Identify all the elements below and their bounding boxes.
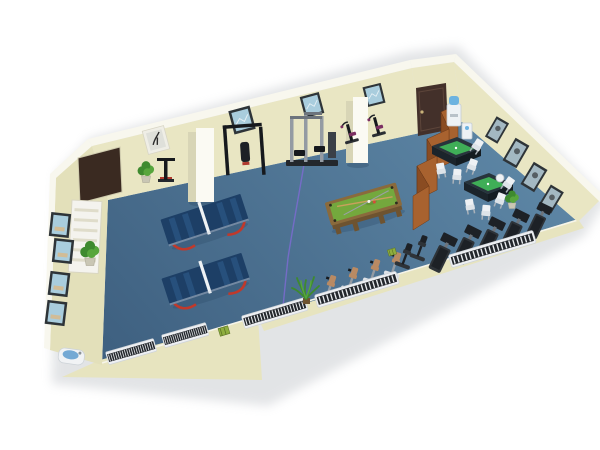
dispenser-body: [462, 123, 472, 139]
pillar-front: [196, 128, 214, 202]
rack-bag: [240, 142, 250, 163]
stool[interactable]: Stool: [496, 174, 504, 182]
machine-handlebar: [157, 158, 175, 161]
pillar-front: [353, 97, 368, 163]
pillar-1[interactable]: Pillar: [188, 128, 215, 207]
picture-left-2[interactable]: Framed picture: [52, 238, 74, 264]
gym-bar: [304, 112, 322, 115]
gym-bar: [290, 116, 322, 119]
gym-base: [286, 160, 338, 166]
cooler-bottle: [449, 96, 459, 105]
gym-seat: [294, 150, 305, 156]
cooler-tray: [450, 114, 458, 117]
pillar-side: [188, 132, 196, 202]
rack-accent: [242, 162, 249, 165]
gym-seat: [314, 146, 325, 152]
gym-post: [290, 118, 294, 162]
picture-left-3[interactable]: Framed picture: [48, 271, 71, 297]
door-knob: [420, 110, 423, 113]
gym-weight-stack: [328, 132, 336, 158]
wall-shelf[interactable]: Slatted wall shelf: [68, 200, 102, 273]
picture-left-1[interactable]: Framed picture: [49, 212, 71, 238]
water-dispenser[interactable]: Water dispenser: [462, 123, 472, 139]
render-canvas: Blue floor Left wall Back wall Right wal…: [0, 0, 600, 450]
room-render: Blue floor Left wall Back wall Right wal…: [0, 0, 600, 450]
dispenser-window: [465, 126, 469, 130]
gym-post: [320, 116, 324, 162]
picture-left-4[interactable]: Framed picture: [45, 300, 68, 326]
machine-column: [164, 160, 168, 180]
water-cooler[interactable]: Water cooler: [447, 96, 461, 126]
